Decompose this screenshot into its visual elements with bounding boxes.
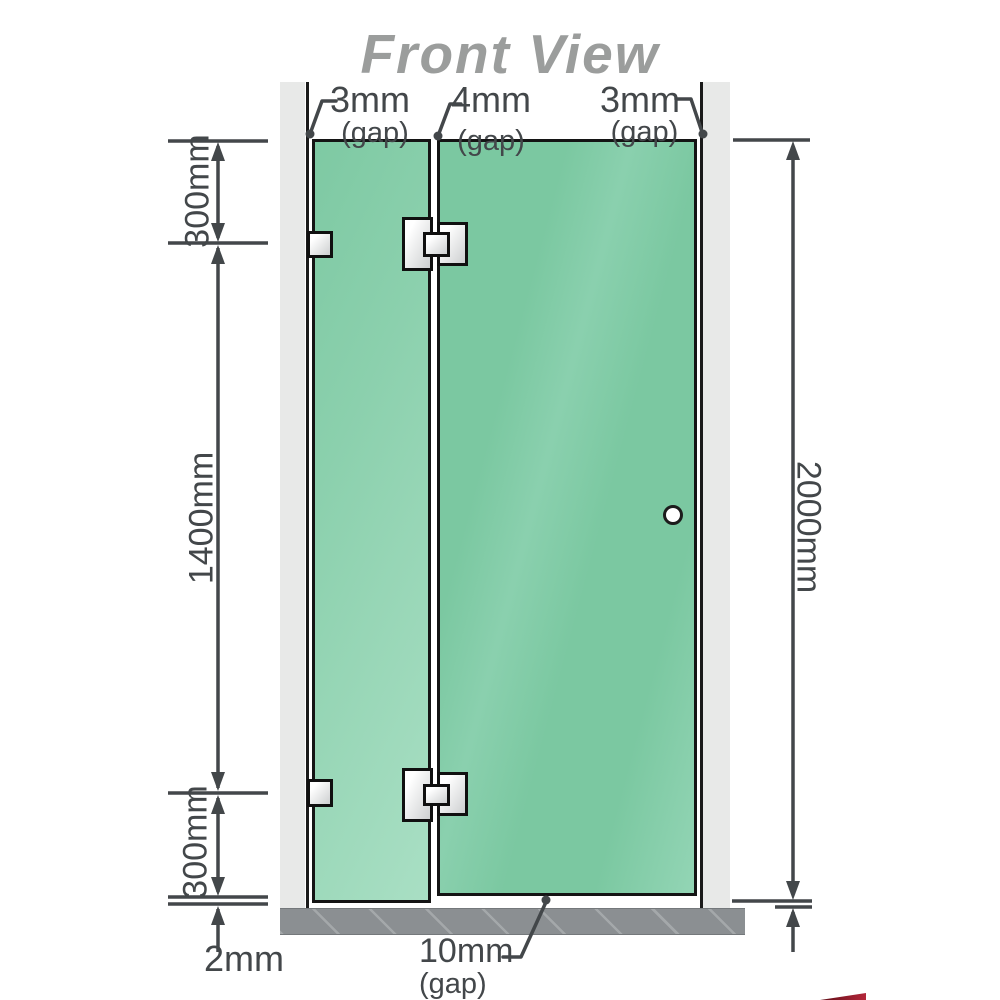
- hinge-bottom-icon: [423, 784, 450, 806]
- logo-sliver: [820, 993, 866, 1000]
- gap-label-left: 3mm (gap): [327, 82, 413, 148]
- floor-base: [280, 908, 745, 935]
- gap-label-right: 3mm (gap): [598, 82, 682, 147]
- dimension-label-total-2000mm: 2000mm: [789, 461, 828, 593]
- dimension-label-bottom-300mm: 300mm: [177, 785, 216, 898]
- door-knob-icon: [663, 505, 683, 525]
- dimension-label-middle-1400mm: 1400mm: [183, 452, 222, 584]
- door-glass-panel: [437, 139, 697, 896]
- dimension-label-top-300mm: 300mm: [179, 134, 218, 247]
- gap-label-bottom: 10mm (gap): [419, 934, 529, 999]
- gap-label-middle: 4mm (gap): [450, 82, 532, 156]
- hinge-top-icon: [423, 232, 450, 257]
- gap-value: 10mm: [419, 934, 529, 968]
- floor-gap-label-2mm: 2mm: [204, 938, 284, 980]
- wall-bracket-top-icon: [307, 231, 333, 258]
- gap-unit: (gap): [337, 119, 413, 148]
- gap-value: 4mm: [450, 82, 532, 118]
- shower-screen-front-view-diagram: Front View: [0, 0, 1000, 1000]
- right-wall-edge-line: [700, 82, 703, 908]
- left-wall: [280, 82, 305, 908]
- wall-bracket-bottom-icon: [307, 779, 333, 807]
- right-wall: [703, 82, 730, 908]
- gap-unit: (gap): [419, 970, 529, 999]
- gap-value: 3mm: [327, 82, 413, 118]
- page-title: Front View: [360, 22, 659, 86]
- gap-unit: (gap): [607, 118, 682, 147]
- gap-value: 3mm: [598, 82, 682, 118]
- gap-unit: (gap): [450, 127, 532, 156]
